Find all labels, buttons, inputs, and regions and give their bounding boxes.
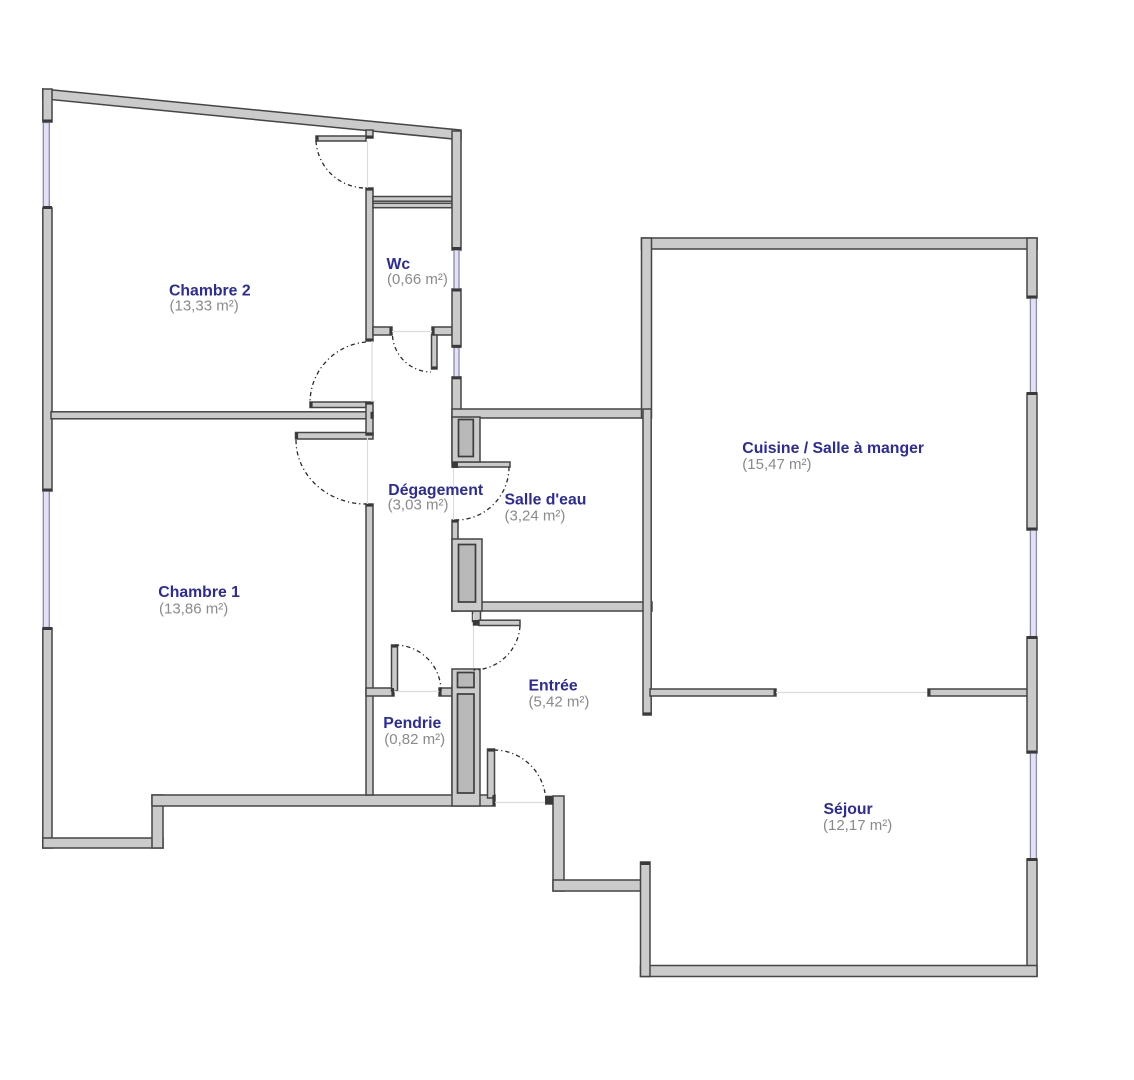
svg-text:(12,17 m²): (12,17 m²) <box>823 817 892 834</box>
svg-text:Entrée: Entrée <box>529 677 578 694</box>
svg-text:(3,24 m²): (3,24 m²) <box>505 508 566 525</box>
svg-text:(13,33 m²): (13,33 m²) <box>170 298 239 315</box>
svg-text:(3,03 m²): (3,03 m²) <box>388 497 449 514</box>
svg-text:Séjour: Séjour <box>824 801 873 818</box>
svg-text:(0,66 m²): (0,66 m²) <box>387 271 448 288</box>
svg-text:Pendrie: Pendrie <box>383 715 441 732</box>
svg-text:Cuisine / Salle à manger: Cuisine / Salle à manger <box>742 440 924 457</box>
svg-text:(5,42 m²): (5,42 m²) <box>529 694 590 711</box>
svg-text:(15,47 m²): (15,47 m²) <box>742 456 811 473</box>
svg-text:Chambre 1: Chambre 1 <box>158 584 240 601</box>
svg-text:(13,86 m²): (13,86 m²) <box>159 601 228 618</box>
svg-text:(0,82 m²): (0,82 m²) <box>384 731 445 748</box>
svg-text:Salle d'eau: Salle d'eau <box>505 492 587 509</box>
